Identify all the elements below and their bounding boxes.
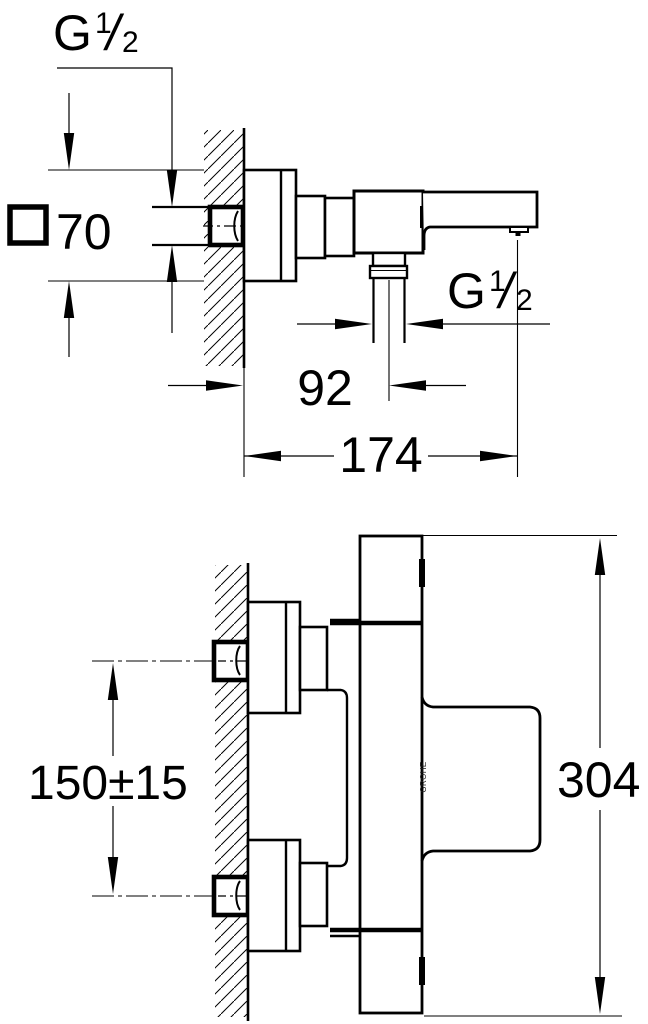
arrowhead-up xyxy=(64,281,74,318)
neck-cylinder-1 xyxy=(296,196,325,258)
arrowhead-up xyxy=(595,538,605,575)
brand-logo: GROHE xyxy=(419,761,428,792)
shower-thread-dimension: G1/2 xyxy=(297,263,550,329)
arrowhead-up xyxy=(108,663,118,700)
shower-thread-label: G1/2 xyxy=(447,263,533,319)
outlet-boss xyxy=(373,253,405,266)
drawing-page: G1 /2 70 G1/2 xyxy=(0,0,648,1024)
dim-304-text: 304 xyxy=(557,752,640,808)
upper-clip-notch xyxy=(419,559,425,587)
valve-body xyxy=(354,191,426,253)
arrowhead-down xyxy=(64,133,74,170)
plan-view: GROHE 150±15 304 xyxy=(28,536,640,1022)
arrowhead-down xyxy=(108,857,118,894)
arrowhead-left xyxy=(406,319,443,329)
arrowhead-down xyxy=(595,977,605,1014)
neck-cylinder-2 xyxy=(325,198,354,256)
arrowhead-right xyxy=(335,319,372,329)
mousseur-nub xyxy=(516,232,521,236)
arrowhead-right xyxy=(206,380,243,390)
shower-outlet xyxy=(370,253,407,401)
dim-174-text: 174 xyxy=(339,427,422,483)
lower-clip-notch xyxy=(419,957,425,985)
spout xyxy=(423,192,537,250)
outlet-ring xyxy=(370,266,407,278)
wall-section xyxy=(215,563,248,1021)
lower-union-nut xyxy=(214,877,248,915)
escutcheon-plate xyxy=(244,170,296,281)
lower-escutcheon xyxy=(248,840,300,951)
wall-hatching xyxy=(215,565,248,1017)
wall-section xyxy=(204,128,244,368)
leader-line xyxy=(57,68,172,172)
arrowhead-left xyxy=(389,380,426,390)
wall-hatching xyxy=(204,130,244,366)
dimension-150: 150±15 xyxy=(28,663,188,894)
arrowhead-right xyxy=(480,451,517,461)
upper-connector xyxy=(300,627,327,690)
inlet-thread-dimension: G1 /2 xyxy=(53,5,177,333)
mousseur xyxy=(510,227,528,232)
escutcheon-dimension: 70 xyxy=(10,93,204,357)
square-symbol-icon xyxy=(10,207,46,243)
body-recessed-face xyxy=(327,690,347,866)
arrowhead-down xyxy=(167,170,177,207)
inlet-thread xyxy=(152,207,210,245)
inlet-thread-label: G1 /2 xyxy=(53,5,139,61)
technical-drawing-canvas: G1 /2 70 G1/2 xyxy=(0,0,648,1024)
upper-union-nut xyxy=(214,642,248,680)
dimension-304: 304 xyxy=(422,536,640,1017)
dim-92-text: 92 xyxy=(297,360,353,416)
dim-150-text: 150±15 xyxy=(28,757,188,810)
escutcheon-size-text: 70 xyxy=(56,204,112,260)
body-column xyxy=(330,536,425,1013)
dimension-92: 92 xyxy=(168,360,466,416)
side-view: G1 /2 70 G1/2 xyxy=(10,5,550,483)
lower-connector xyxy=(300,863,327,926)
body-tongue xyxy=(422,697,540,861)
upper-escutcheon xyxy=(248,602,300,713)
arrowhead-up xyxy=(167,245,177,282)
arrowhead-left xyxy=(244,451,281,461)
